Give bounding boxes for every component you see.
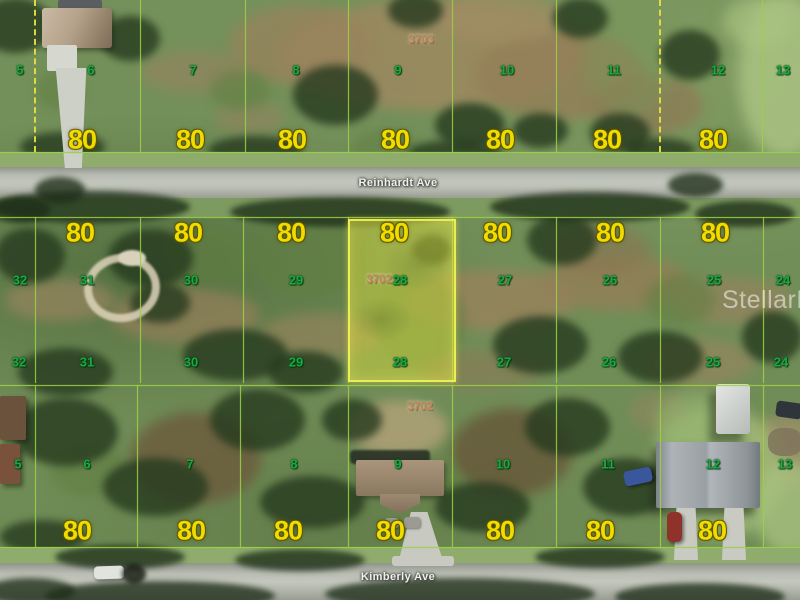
lot-dimension-label: 80 xyxy=(586,516,614,547)
lot-dimension-label: 80 xyxy=(174,218,202,249)
lot-number-label: 32 xyxy=(12,355,26,370)
lot-number-label: 13 xyxy=(776,63,790,78)
lot-number-label: 25 xyxy=(707,273,721,288)
lot-number-label: 7 xyxy=(186,457,193,472)
lot-number-label: 8 xyxy=(292,63,299,78)
lot-dimension-label: 80 xyxy=(593,125,621,156)
lot-dimension-label: 80 xyxy=(176,125,204,156)
lot-number-label: 6 xyxy=(83,457,90,472)
lot-dimension-label: 80 xyxy=(63,516,91,547)
lot-number-label: 5 xyxy=(16,63,23,78)
lot-number-label: 11 xyxy=(601,457,615,472)
lot-dimension-label: 80 xyxy=(699,125,727,156)
lot-number-label: 10 xyxy=(496,457,510,472)
lot-dimension-label: 80 xyxy=(277,218,305,249)
lot-number-label: 30 xyxy=(184,273,198,288)
lot-number-label: 27 xyxy=(498,273,512,288)
lot-number-label: 12 xyxy=(711,63,725,78)
lot-number-label: 30 xyxy=(184,355,198,370)
lot-dimension-label: 80 xyxy=(486,516,514,547)
lot-dimension-label: 80 xyxy=(177,516,205,547)
lot-dimension-label: 80 xyxy=(381,125,409,156)
lot-number-label: 13 xyxy=(778,457,792,472)
lot-number-label: 26 xyxy=(603,273,617,288)
parcel-id-label: 3702 xyxy=(407,401,433,413)
lot-dimension-label: 80 xyxy=(701,218,729,249)
lot-number-label: 28 xyxy=(393,273,407,288)
lot-number-label: 28 xyxy=(393,355,407,370)
lot-number-label: 31 xyxy=(80,355,94,370)
lot-number-label: 24 xyxy=(774,355,788,370)
lot-number-label: 12 xyxy=(706,457,720,472)
lot-dimension-label: 80 xyxy=(486,125,514,156)
lot-dimension-label: 80 xyxy=(380,218,408,249)
lot-number-label: 5 xyxy=(14,457,21,472)
lot-dimension-label: 80 xyxy=(274,516,302,547)
lot-dimension-label: 80 xyxy=(376,516,404,547)
lot-dimension-label: 80 xyxy=(278,125,306,156)
lot-dimension-label: 80 xyxy=(66,218,94,249)
lot-number-label: 9 xyxy=(394,63,401,78)
lot-number-label: 29 xyxy=(289,273,303,288)
plat-map-aerial: 5678910111213808080808080803703323130292… xyxy=(0,0,800,600)
lot-number-label: 27 xyxy=(497,355,511,370)
lot-dimension-label: 80 xyxy=(698,516,726,547)
lot-number-label: 31 xyxy=(80,273,94,288)
lot-number-label: 9 xyxy=(394,457,401,472)
lot-number-label: 6 xyxy=(87,63,94,78)
lot-number-label: 10 xyxy=(500,63,514,78)
lot-number-label: 26 xyxy=(602,355,616,370)
lot-dimension-label: 80 xyxy=(596,218,624,249)
parcel-id-label: 3702 xyxy=(366,274,392,286)
lot-number-label: 29 xyxy=(289,355,303,370)
street-name-reinhardt: Reinhardt Ave xyxy=(359,177,438,189)
lot-number-label: 7 xyxy=(189,63,196,78)
parcel-labels-layer: 5678910111213808080808080803703323130292… xyxy=(0,0,800,600)
lot-number-label: 11 xyxy=(607,63,621,78)
lot-dimension-label: 80 xyxy=(483,218,511,249)
lot-number-label: 25 xyxy=(706,355,720,370)
lot-dimension-label: 80 xyxy=(68,125,96,156)
parcel-id-label: 3703 xyxy=(408,34,434,46)
lot-number-label: 32 xyxy=(13,273,27,288)
stellarmls-watermark: StellarMLS xyxy=(722,286,800,315)
lot-number-label: 8 xyxy=(290,457,297,472)
street-name-kimberly: Kimberly Ave xyxy=(361,571,435,583)
